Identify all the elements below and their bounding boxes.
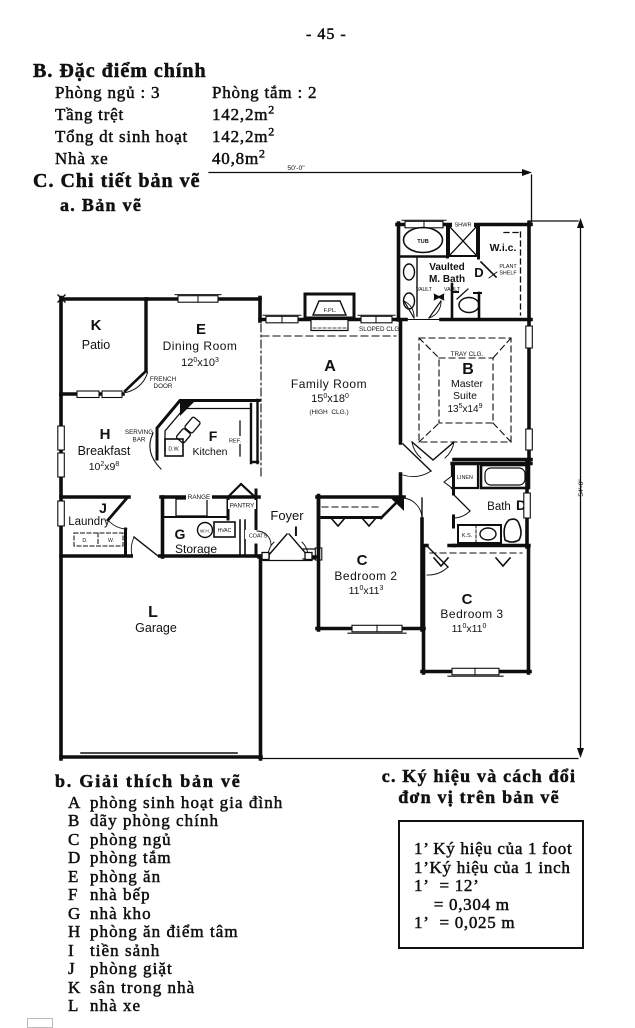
svg-text:SHELF: SHELF [499,271,517,277]
svg-text:I: I [294,523,298,539]
svg-text:110x113: 110x113 [349,585,384,597]
svg-text:COATS: COATS [249,534,268,540]
svg-text:C: C [462,591,473,608]
svg-text:E: E [196,321,206,338]
svg-text:50'-0": 50'-0" [287,165,305,172]
svg-text:G: G [175,526,186,542]
svg-text:150x180: 150x180 [311,393,349,405]
svg-text:W.: W. [108,538,114,544]
svg-text:K.S.: K.S. [462,533,473,539]
svg-text:SHWR: SHWR [454,223,471,229]
svg-text:54'-0": 54'-0" [578,479,585,497]
svg-text:120x103: 120x103 [181,357,219,369]
svg-text:W.i.c.: W.i.c. [490,242,517,254]
svg-text:SLOPED CLG.: SLOPED CLG. [359,326,401,333]
svg-text:Foyer: Foyer [270,508,304,523]
svg-text:SERVING: SERVING [125,429,153,436]
svg-text:Bath: Bath [487,501,511,513]
svg-text:D: D [474,265,483,280]
svg-text:VAULT: VAULT [416,287,433,293]
svg-text:HVAC: HVAC [218,528,232,534]
svg-text:D.W.: D.W. [168,447,179,453]
svg-text:L: L [148,604,158,621]
svg-text:Breakfast: Breakfast [78,444,131,458]
svg-text:B: B [462,361,474,378]
svg-text:PLANT: PLANT [499,264,517,270]
svg-text:110x110: 110x110 [452,623,487,635]
svg-text:TUB: TUB [417,239,429,245]
svg-text:DOOR: DOOR [154,383,173,390]
svg-text:Kitchen: Kitchen [192,446,227,458]
svg-text:H: H [100,426,111,443]
svg-text:Bedroom 2: Bedroom 2 [334,569,397,583]
svg-text:102x98: 102x98 [89,461,120,473]
svg-text:A: A [324,358,336,375]
svg-text:Garage: Garage [135,621,177,635]
svg-text:F.PL.: F.PL. [324,308,337,314]
svg-text:Vaulted: Vaulted [429,262,465,273]
svg-text:Laundry: Laundry [68,516,110,528]
svg-text:Storage: Storage [175,542,217,556]
svg-text:(HIGH CLG.): (HIGH CLG.) [309,409,348,416]
svg-text:BAR: BAR [133,437,146,444]
svg-text:FRENCH: FRENCH [150,376,177,383]
svg-text:LINEN: LINEN [457,475,473,481]
svg-text:Master: Master [451,378,484,390]
svg-text:Patio: Patio [82,338,111,352]
svg-text:F: F [209,428,218,444]
svg-text:Bedroom 3: Bedroom 3 [440,607,503,621]
svg-text:C: C [357,552,368,569]
svg-text:PANTRY: PANTRY [230,503,255,510]
svg-text:K: K [91,317,102,334]
svg-text:RANGE: RANGE [188,494,210,501]
svg-text:Family Room: Family Room [291,377,367,391]
svg-text:M. Bath: M. Bath [429,274,465,285]
svg-text:D.: D. [82,538,87,544]
svg-text:W.H.: W.H. [200,529,210,534]
svg-text:135x149: 135x149 [447,403,482,415]
svg-text:TRAY CLG.: TRAY CLG. [451,351,484,358]
svg-text:Suite: Suite [453,390,477,402]
svg-text:REF.: REF. [229,439,242,445]
svg-text:Dining Room: Dining Room [163,339,238,353]
svg-text:J: J [99,500,107,516]
